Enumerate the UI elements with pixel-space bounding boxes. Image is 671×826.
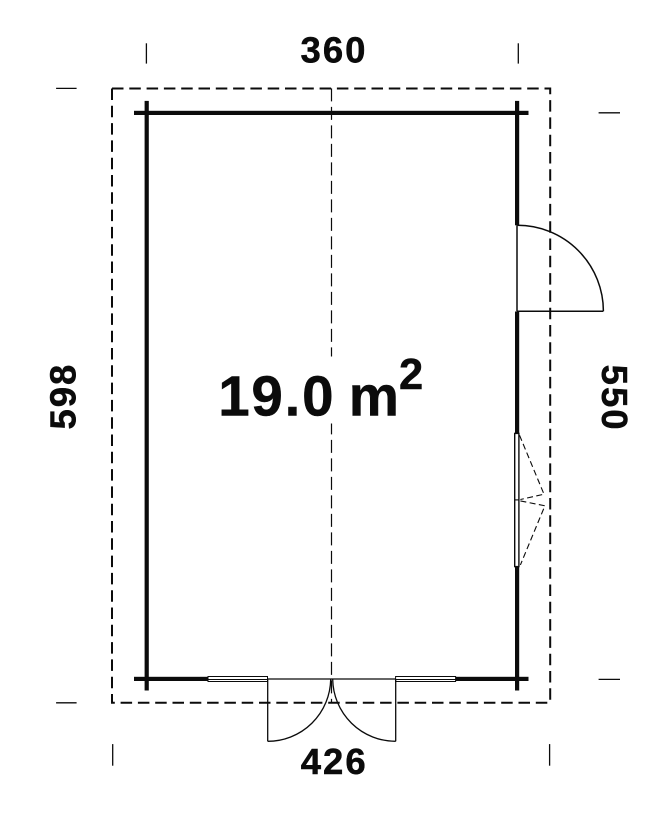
svg-text:360: 360 xyxy=(301,30,368,71)
svg-text:19.0: 19.0 xyxy=(218,364,335,427)
svg-text:550: 550 xyxy=(594,365,635,432)
svg-text:426: 426 xyxy=(301,741,368,782)
svg-text:m: m xyxy=(349,364,399,427)
svg-text:2: 2 xyxy=(399,351,423,399)
svg-text:598: 598 xyxy=(43,363,84,430)
